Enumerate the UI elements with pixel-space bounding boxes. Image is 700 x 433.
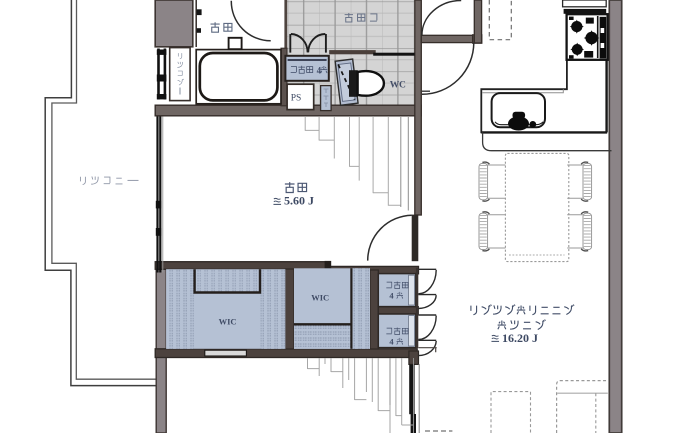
svg-text:4: 4 [389,291,394,301]
svg-text:WC: WC [390,81,406,91]
svg-text:WIC: WIC [311,293,329,303]
svg-text:WIC: WIC [219,316,237,326]
svg-text:5.60 J: 5.60 J [284,194,314,208]
svg-text:16.20 J: 16.20 J [502,331,538,345]
svg-text:PS: PS [291,94,302,104]
svg-text:4: 4 [389,337,394,347]
svg-text:4: 4 [317,65,322,75]
